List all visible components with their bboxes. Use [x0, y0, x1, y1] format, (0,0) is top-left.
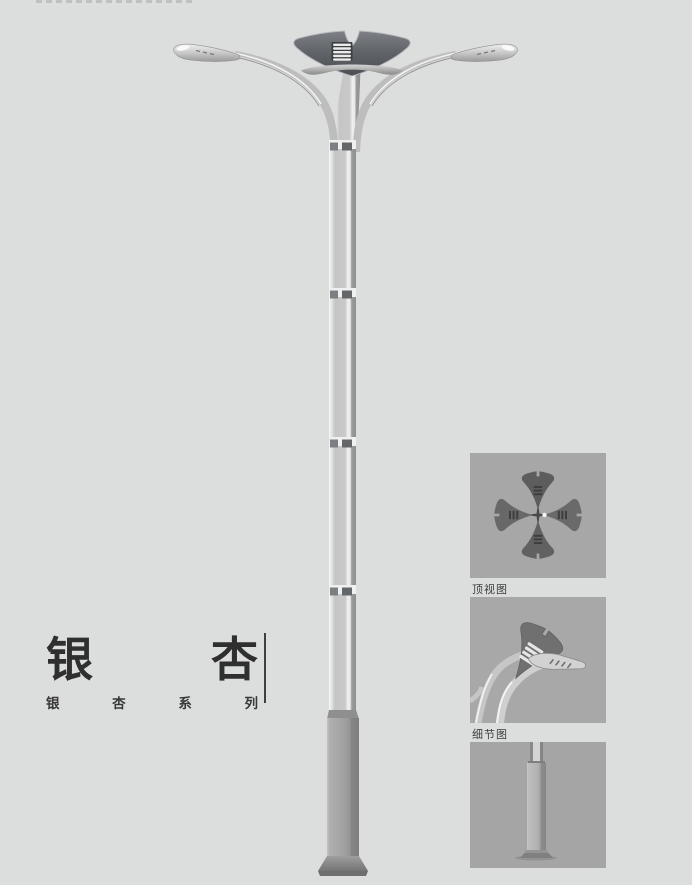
pole-base-plate — [318, 856, 368, 876]
series-subtitle-char: 系 — [178, 692, 192, 712]
title-divider — [264, 633, 266, 703]
pole-joint-1 — [329, 140, 356, 151]
pole-joint-4 — [329, 585, 356, 596]
figure-detail-view-image — [470, 597, 606, 723]
base-view-pole — [528, 742, 545, 765]
series-subtitle: 银 杏 系 列 — [46, 692, 258, 712]
series-title-char: 银 — [46, 636, 93, 683]
base-view-column — [527, 763, 546, 850]
figure-label-top-view: 顶视图 — [470, 578, 606, 597]
pole-joint-2 — [329, 288, 356, 299]
lamp-head-right — [451, 44, 517, 61]
lamp-canopy-slats — [332, 42, 353, 61]
lamp-pole — [329, 140, 356, 718]
pole-joint-3 — [329, 437, 356, 448]
catalog-page: 银 杏 银 杏 系 列 — [0, 0, 692, 885]
figure-top-view-image — [470, 453, 606, 578]
figure-label-base-view — [470, 868, 606, 885]
lamp-head-left — [174, 44, 240, 61]
series-title: 银 杏 — [46, 636, 258, 683]
series-title-char: 杏 — [211, 636, 258, 683]
figure-label-detail-view: 细节图 — [470, 723, 606, 742]
pole-base-column — [327, 710, 359, 858]
figure-column: 顶视图 — [470, 453, 606, 885]
series-subtitle-char: 列 — [244, 692, 258, 712]
figure-base-view-image — [470, 742, 606, 868]
series-subtitle-char: 银 — [46, 692, 60, 712]
series-subtitle-char: 杏 — [112, 692, 126, 712]
